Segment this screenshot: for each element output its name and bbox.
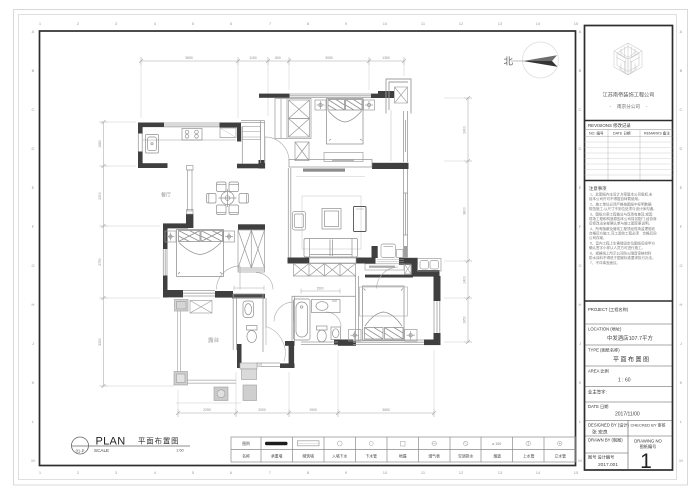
svg-text:平面布置图: 平面布置图 [138,437,179,446]
svg-text:A: A [579,29,582,34]
svg-text:14: 14 [536,21,541,26]
svg-text:B: B [32,68,35,73]
svg-text:2750: 2750 [98,258,102,266]
svg-text:REVISIONS 修改记录: REVISIONS 修改记录 [588,122,631,129]
svg-text:入墙下水: 入墙下水 [332,454,347,459]
svg-text:SCALE: SCALE [94,448,109,453]
svg-text:3050: 3050 [325,56,333,60]
svg-text:露台: 露台 [208,336,220,344]
svg-text:现场工程和构造原因本公司将另配门,经协商: 现场工程和构造原因本公司将另配门,经协商 [589,216,657,221]
svg-text:14: 14 [536,470,541,475]
svg-text:合格后方施工,完工验收工程必须 合格后同: 合格后方施工,完工验收工程必须 合格后同 [589,231,657,236]
svg-text:DESIGNED BY (设计): DESIGNED BY (设计) [588,422,629,429]
svg-text:- 南京分公司 -: - 南京分公司 - [610,103,648,110]
svg-text:A: A [32,29,35,34]
svg-text:⌀ 100: ⌀ 100 [492,442,501,446]
svg-text:PROJECT (工程名称): PROJECT (工程名称) [588,306,629,313]
svg-text:2、施工单位必须严格按图纸中标明数据: 2、施工单位必须严格按图纸中标明数据 [590,202,652,207]
svg-text:K: K [32,380,35,385]
svg-text:1400: 1400 [463,276,467,284]
svg-text:煤气表: 煤气表 [429,454,441,459]
svg-text:G: G [679,263,682,268]
svg-text:D: D [579,146,582,151]
svg-text:H: H [32,302,35,307]
svg-text:图号 设计编号: 图号 设计编号 [588,454,614,461]
svg-text:名称: 名称 [242,454,250,459]
svg-text:B: B [579,68,582,73]
svg-text:1650: 1650 [463,316,467,324]
svg-text:烟道: 烟道 [493,454,501,459]
svg-text:立水管: 立水管 [555,454,567,459]
svg-text:1680: 1680 [98,140,102,148]
svg-text:G: G [578,263,581,268]
svg-text:K: K [579,380,582,385]
svg-text:13: 13 [498,470,503,475]
svg-text:2017.001: 2017.001 [598,462,618,468]
svg-text:A: A [680,29,683,34]
svg-text:注意事项: 注意事项 [589,185,607,192]
svg-text:承重墙: 承重墙 [271,454,283,459]
svg-text:C: C [32,107,35,112]
svg-text:张 宏良: 张 宏良 [592,429,608,436]
svg-text:G: G [31,263,34,268]
svg-text:1:60: 1:60 [176,448,185,453]
svg-text:M: M [679,458,682,463]
svg-text:3650: 3650 [185,56,193,60]
svg-text:E: E [579,185,582,190]
svg-text:LOCATION (地址): LOCATION (地址) [588,326,622,332]
svg-text:4、所有隐蔽及管线工程须经现场监理验收: 4、所有隐蔽及管线工程须经现场监理验收 [590,226,655,231]
svg-text:上水管: 上水管 [523,454,535,459]
svg-text:下水管: 下水管 [366,454,378,459]
svg-text:CHECKED BY 审核: CHECKED BY 审核 [631,422,666,428]
svg-text:图纸编号: 图纸编号 [640,443,657,450]
svg-text:13: 13 [498,21,503,26]
svg-text:2300: 2300 [98,192,102,200]
svg-text:北: 北 [504,57,514,68]
svg-text:餐厅: 餐厅 [161,192,171,199]
svg-text:1 : 60: 1 : 60 [618,378,631,384]
svg-text:7、不详事宜面议。: 7、不详事宜面议。 [590,260,620,265]
svg-text:2000: 2000 [258,408,266,412]
svg-text:3800: 3800 [463,207,467,215]
svg-text:图例: 图例 [242,441,250,446]
svg-text:NO. 编号: NO. 编号 [589,131,604,136]
svg-text:C: C [680,107,683,112]
svg-text:2250: 2250 [203,408,211,412]
svg-text:空调排水: 空调排水 [458,454,473,459]
svg-text:经本公司许可不得擅自转载使用。: 经本公司许可不得擅自转载使用。 [589,196,642,201]
svg-text:REMARKS 备注: REMARKS 备注 [644,131,670,136]
svg-text:江苏南帝装饰工程公司: 江苏南帝装饰工程公司 [603,91,655,99]
svg-text:J: J [680,341,682,346]
svg-text:确认签字小样认人员方可进行施工。: 确认签字小样认人员方可进行施工。 [589,245,645,250]
svg-text:M: M [578,458,581,463]
svg-text:1150: 1150 [249,56,256,60]
svg-text:J: J [32,341,34,346]
svg-text:TYPE (图纸名称): TYPE (图纸名称) [588,347,620,354]
svg-text:01-P: 01-P [76,449,85,454]
svg-text:J: J [579,341,581,346]
svg-text:后修改出全部确认单与施工图变更说明。: 后修改出全部确认单与施工图变更说明。 [589,221,652,226]
svg-text:1350: 1350 [382,56,390,60]
svg-text:B: B [680,68,683,73]
svg-text:3650: 3650 [382,408,390,412]
svg-text:12: 12 [459,21,464,26]
svg-text:2017/11/00: 2017/11/00 [615,412,640,418]
svg-text:10: 10 [383,470,388,475]
svg-text:AREA 比例: AREA 比例 [588,368,609,375]
svg-text:DRAWING NO: DRAWING NO [634,439,662,444]
svg-text:15: 15 [574,470,579,475]
svg-text:C: C [579,107,582,112]
svg-text:5、室内工程上生需铺设定位图纸后经甲方: 5、室内工程上生需铺设定位图纸后经甲方 [590,241,655,246]
svg-text:DATE 日期: DATE 日期 [613,131,631,136]
svg-text:1: 1 [640,450,652,473]
svg-text:平面布置图: 平面布置图 [613,356,651,364]
svg-text:公司存案。: 公司存案。 [589,235,607,240]
svg-text:砌筑墙: 砌筑墙 [303,454,315,459]
svg-text:业主签字:: 业主签字: [588,389,607,395]
svg-text:D: D [32,146,35,151]
svg-text:3、图纸方案工程做法与现场有差异,或因: 3、图纸方案工程做法与现场有差异,或因 [590,212,653,217]
svg-text:6、规格线上所示公司防火隔音审核材料: 6、规格线上所示公司防火隔音审核材料 [590,251,652,256]
svg-text:1、此图纸内主设计方案属本公司版权,未: 1、此图纸内主设计方案属本公司版权,未 [590,192,653,197]
svg-text:800: 800 [275,56,281,60]
svg-text:12: 12 [459,470,464,475]
svg-text:15: 15 [574,21,579,26]
svg-text:D: D [680,146,683,151]
svg-text:10: 10 [383,21,388,26]
svg-text:规范施工,以尺寸不到位处须与设计师沟通。: 规范施工,以尺寸不到位处须与设计师沟通。 [589,206,656,211]
svg-text:1900: 1900 [309,408,317,412]
svg-text:DRAWN BY (制图): DRAWN BY (制图) [588,437,623,444]
svg-text:PLAN: PLAN [96,436,126,448]
svg-text:E: E [32,185,35,190]
svg-text:2400: 2400 [463,126,467,134]
svg-text:地漏: 地漏 [399,454,407,459]
svg-text:H: H [680,302,683,307]
svg-text:3350: 3350 [98,338,102,346]
svg-text:K: K [680,380,683,385]
svg-text:中发酒店107.7平方: 中发酒店107.7平方 [607,334,653,342]
svg-text:E: E [680,185,683,190]
svg-text:防水涂料不得低于国家标准要求执行办法。: 防水涂料不得低于国家标准要求执行办法。 [589,255,656,260]
svg-text:1500: 1500 [316,287,323,291]
svg-text:H: H [579,302,582,307]
svg-text:M: M [31,458,34,463]
